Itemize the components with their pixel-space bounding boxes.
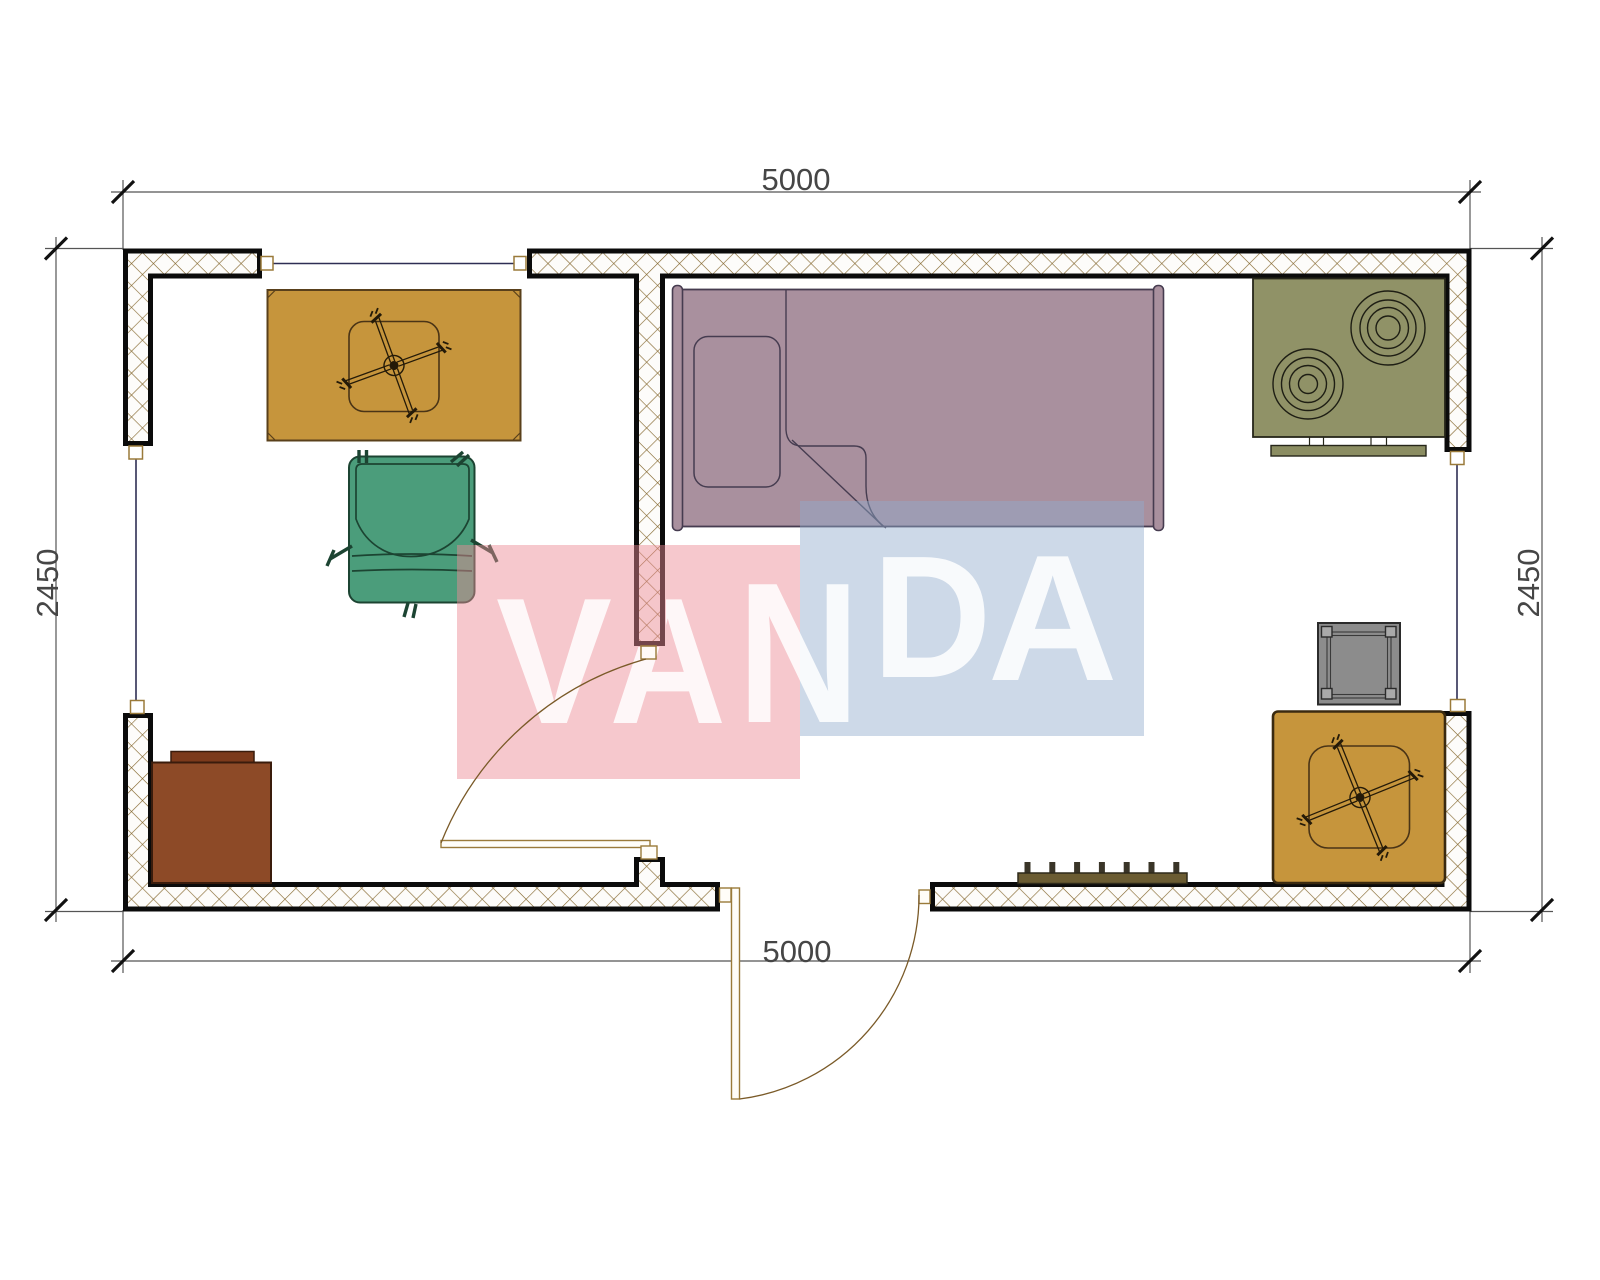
svg-text:5000: 5000 xyxy=(763,934,832,969)
svg-text:2450: 2450 xyxy=(30,549,65,618)
svg-text:2450: 2450 xyxy=(1511,549,1546,618)
svg-text:A: A xyxy=(609,561,726,762)
svg-text:V: V xyxy=(496,561,612,761)
svg-text:5000: 5000 xyxy=(762,162,831,197)
svg-text:A: A xyxy=(988,518,1118,719)
svg-text:N: N xyxy=(737,542,859,765)
svg-text:D: D xyxy=(872,519,991,714)
